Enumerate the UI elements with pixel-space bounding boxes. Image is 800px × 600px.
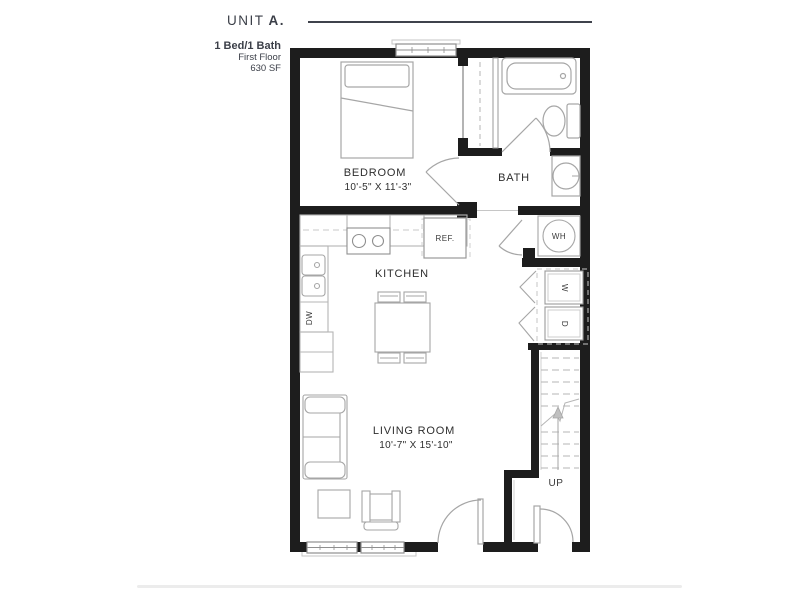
refrigerator-label: REF. bbox=[436, 234, 455, 243]
range-icon bbox=[347, 228, 390, 254]
armchair-icon bbox=[362, 491, 400, 530]
living-room-dims: 10'-7" X 15'-10" bbox=[379, 440, 453, 451]
living-room-label: LIVING ROOM bbox=[373, 425, 455, 437]
side-table-icon bbox=[318, 490, 350, 518]
living-entry-door bbox=[438, 499, 483, 544]
dishwasher-label: DW bbox=[305, 311, 314, 325]
bedroom-label: BEDROOM bbox=[344, 167, 406, 179]
dryer-label: D bbox=[560, 321, 569, 327]
kitchen-label: KITCHEN bbox=[375, 268, 429, 280]
bedroom-dims: 10'-5" X 11'-3" bbox=[345, 182, 412, 193]
up-arrow: UP bbox=[549, 407, 564, 489]
dining-table-icon bbox=[375, 292, 430, 363]
living-window-left bbox=[307, 542, 357, 553]
bath-label: BATH bbox=[498, 172, 530, 184]
water-heater-door bbox=[499, 220, 522, 255]
stairs-up-label: UP bbox=[549, 478, 564, 489]
bifold-door-upper bbox=[520, 271, 536, 303]
bed-icon bbox=[341, 62, 413, 158]
water-heater-icon: WH bbox=[538, 216, 580, 256]
bedroom-door bbox=[426, 158, 459, 205]
bifold-door-lower bbox=[519, 307, 535, 341]
footer-divider bbox=[137, 585, 682, 588]
bedroom-closet bbox=[463, 58, 498, 148]
bathtub-icon bbox=[502, 58, 576, 94]
sofa-icon bbox=[303, 395, 347, 479]
washer-dryer-closet: W D bbox=[519, 269, 588, 344]
bath-sink-icon bbox=[552, 156, 580, 196]
stair-entry-door bbox=[534, 506, 573, 543]
kitchen-sink-icon bbox=[302, 255, 325, 296]
living-window-right bbox=[361, 542, 404, 553]
top-window bbox=[396, 44, 456, 56]
toilet-icon bbox=[543, 104, 580, 138]
washer-label: W bbox=[560, 284, 569, 292]
water-heater-label: WH bbox=[552, 232, 566, 241]
floor-plan: REF. DW WH W D bbox=[0, 0, 800, 600]
refrigerator: REF. bbox=[424, 218, 466, 258]
